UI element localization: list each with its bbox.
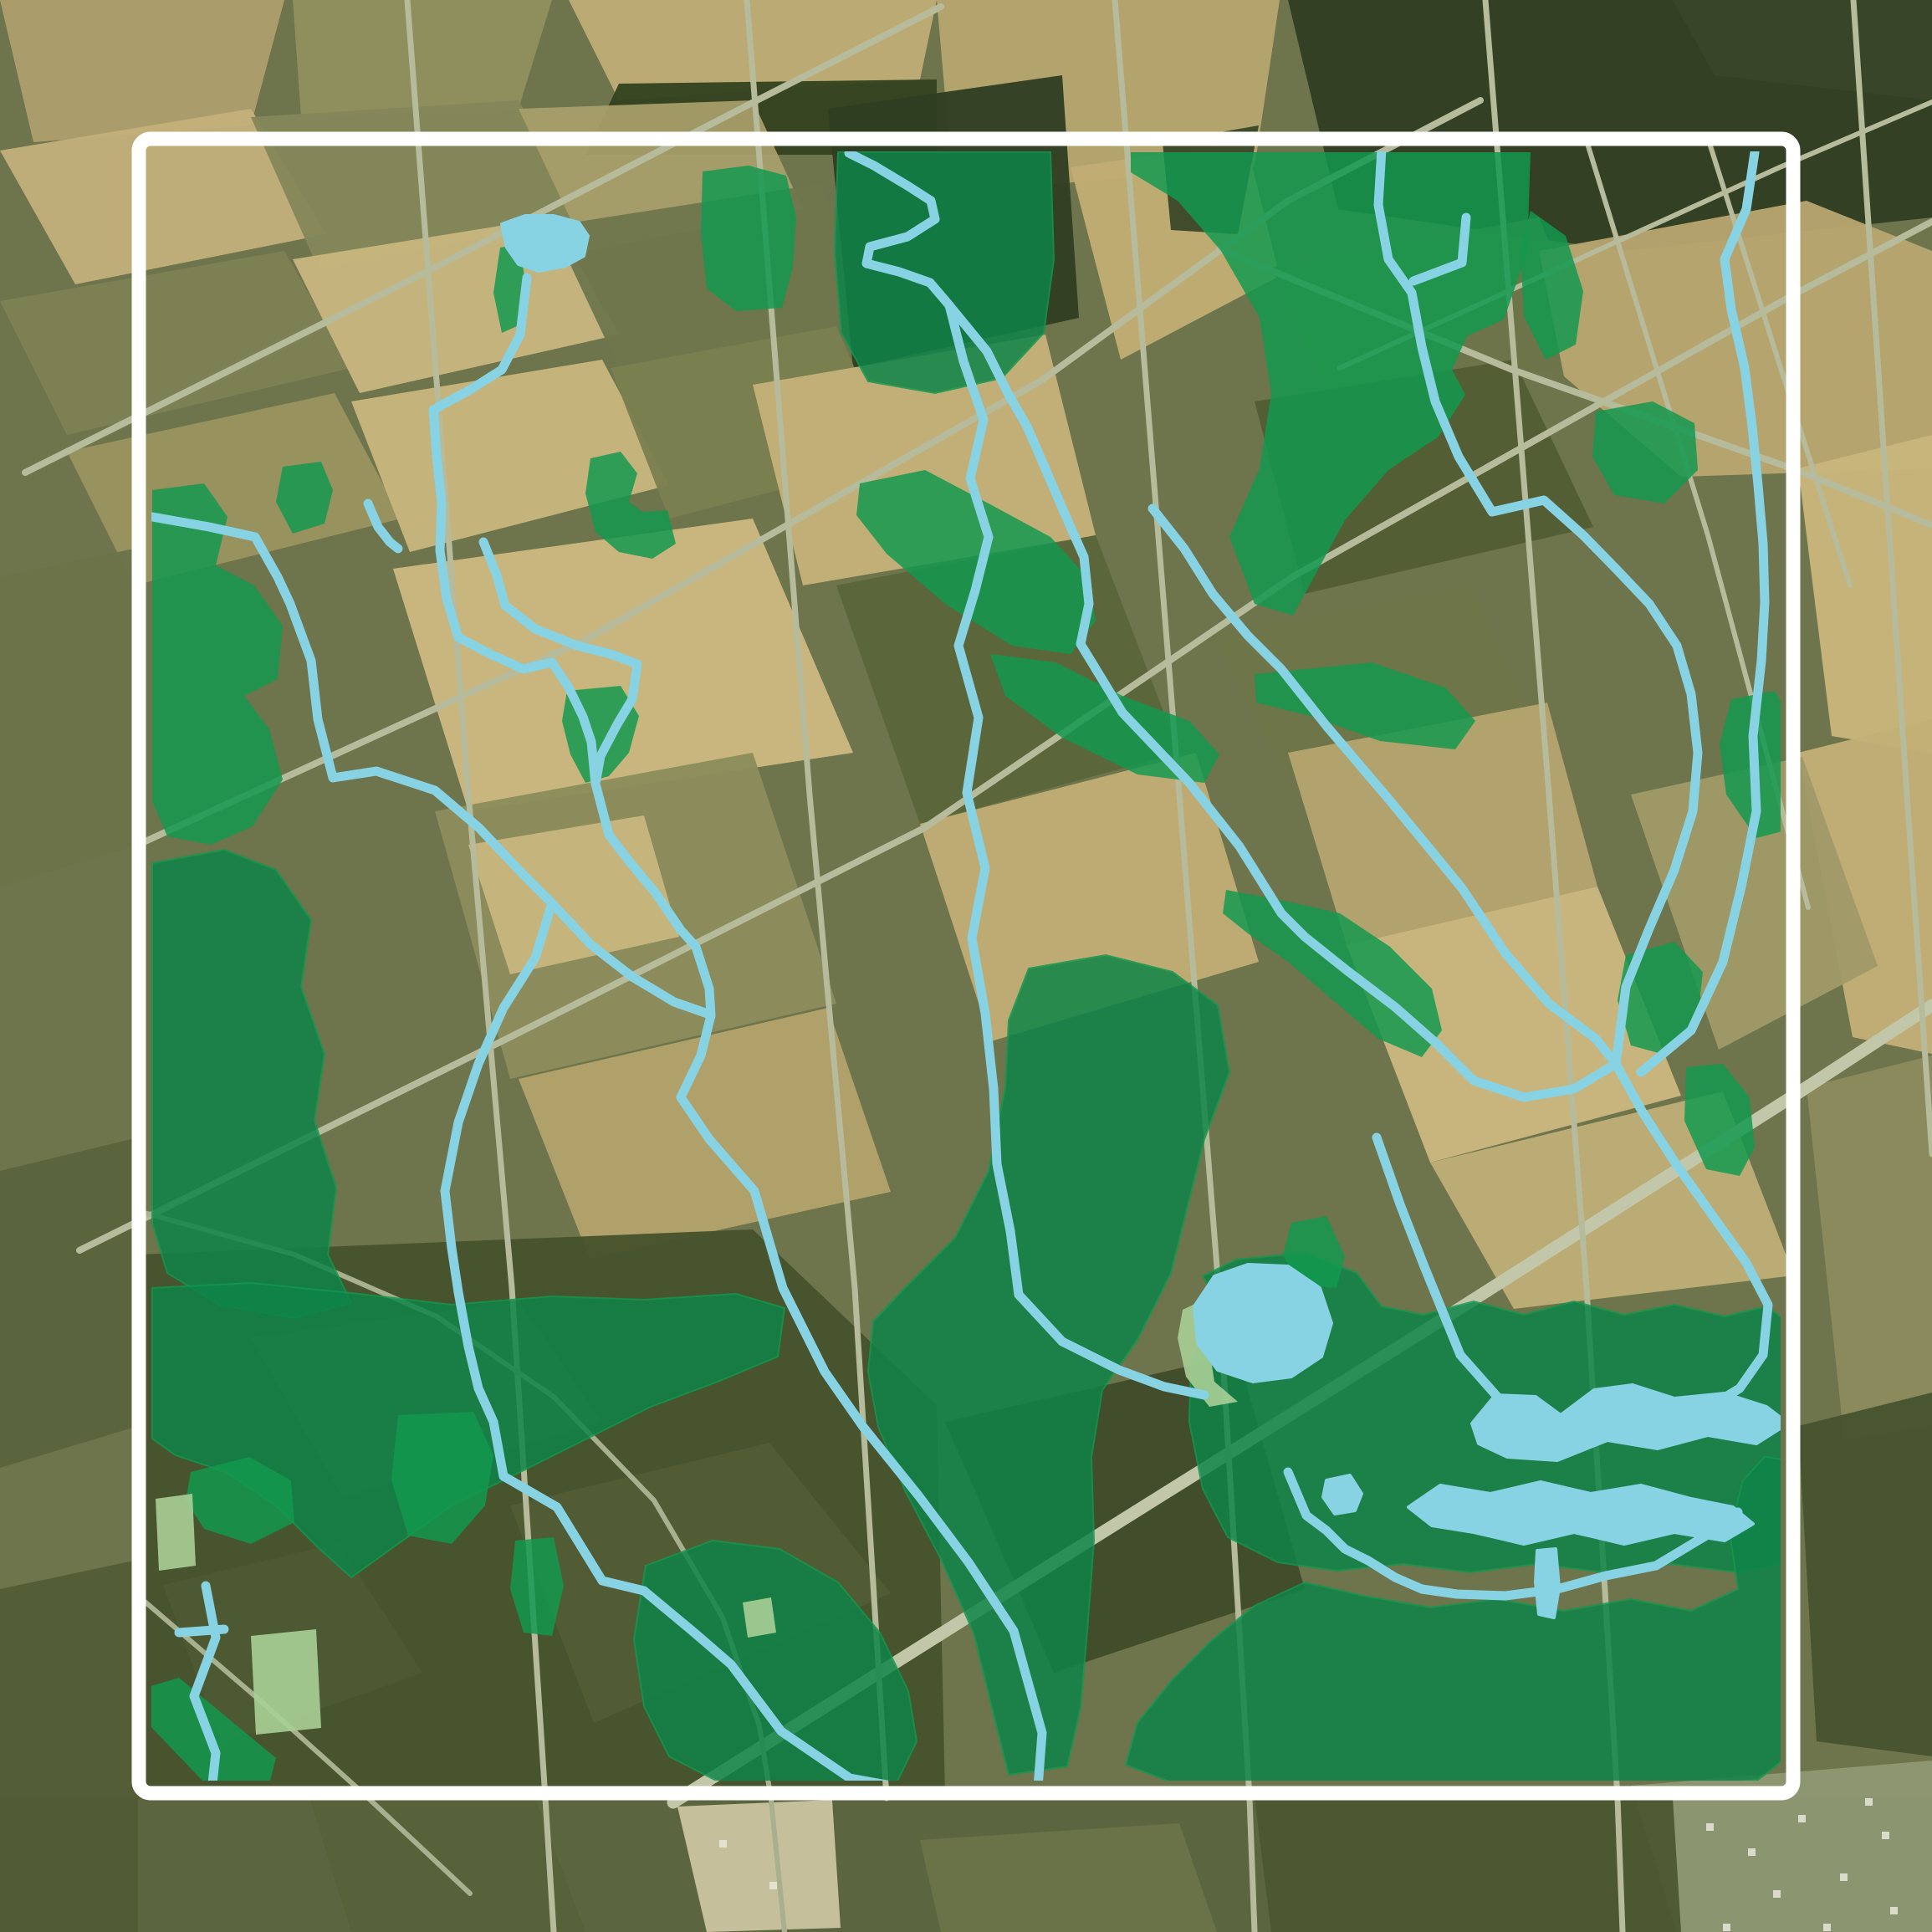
building-speckle xyxy=(1773,1890,1781,1898)
field-patch xyxy=(0,1560,138,1932)
field-patch xyxy=(920,1823,1217,1932)
building-speckle xyxy=(1882,1832,1889,1839)
meadow-overlay-polygon xyxy=(743,1597,776,1638)
pond-polygon xyxy=(1536,1549,1559,1618)
field-patch xyxy=(1798,1393,1932,1756)
building-speckle xyxy=(1748,1848,1756,1856)
building-speckle xyxy=(1706,1823,1714,1831)
meadow-overlay-polygon xyxy=(251,1629,321,1735)
meadow-overlay-polygon xyxy=(156,1494,196,1571)
building-speckle xyxy=(1840,1873,1848,1881)
forest-overlay-polygon xyxy=(701,166,796,311)
pond-polygon xyxy=(1194,1265,1331,1382)
field-patch xyxy=(0,1137,138,1468)
building-speckle xyxy=(769,1882,777,1889)
forest-overlay-polygon xyxy=(835,152,1054,393)
building-speckle xyxy=(1865,1798,1873,1806)
map-viewport[interactable] xyxy=(0,0,1932,1932)
field-patch xyxy=(293,0,552,117)
building-speckle xyxy=(719,1840,727,1848)
building-speckle xyxy=(1723,1924,1730,1931)
building-speckle xyxy=(1890,1907,1898,1914)
building-speckle xyxy=(1823,1924,1831,1931)
stream-path xyxy=(179,1629,224,1633)
field-patch xyxy=(0,548,138,887)
map-canvas[interactable] xyxy=(0,0,1932,1932)
building-speckle xyxy=(1798,1815,1806,1822)
